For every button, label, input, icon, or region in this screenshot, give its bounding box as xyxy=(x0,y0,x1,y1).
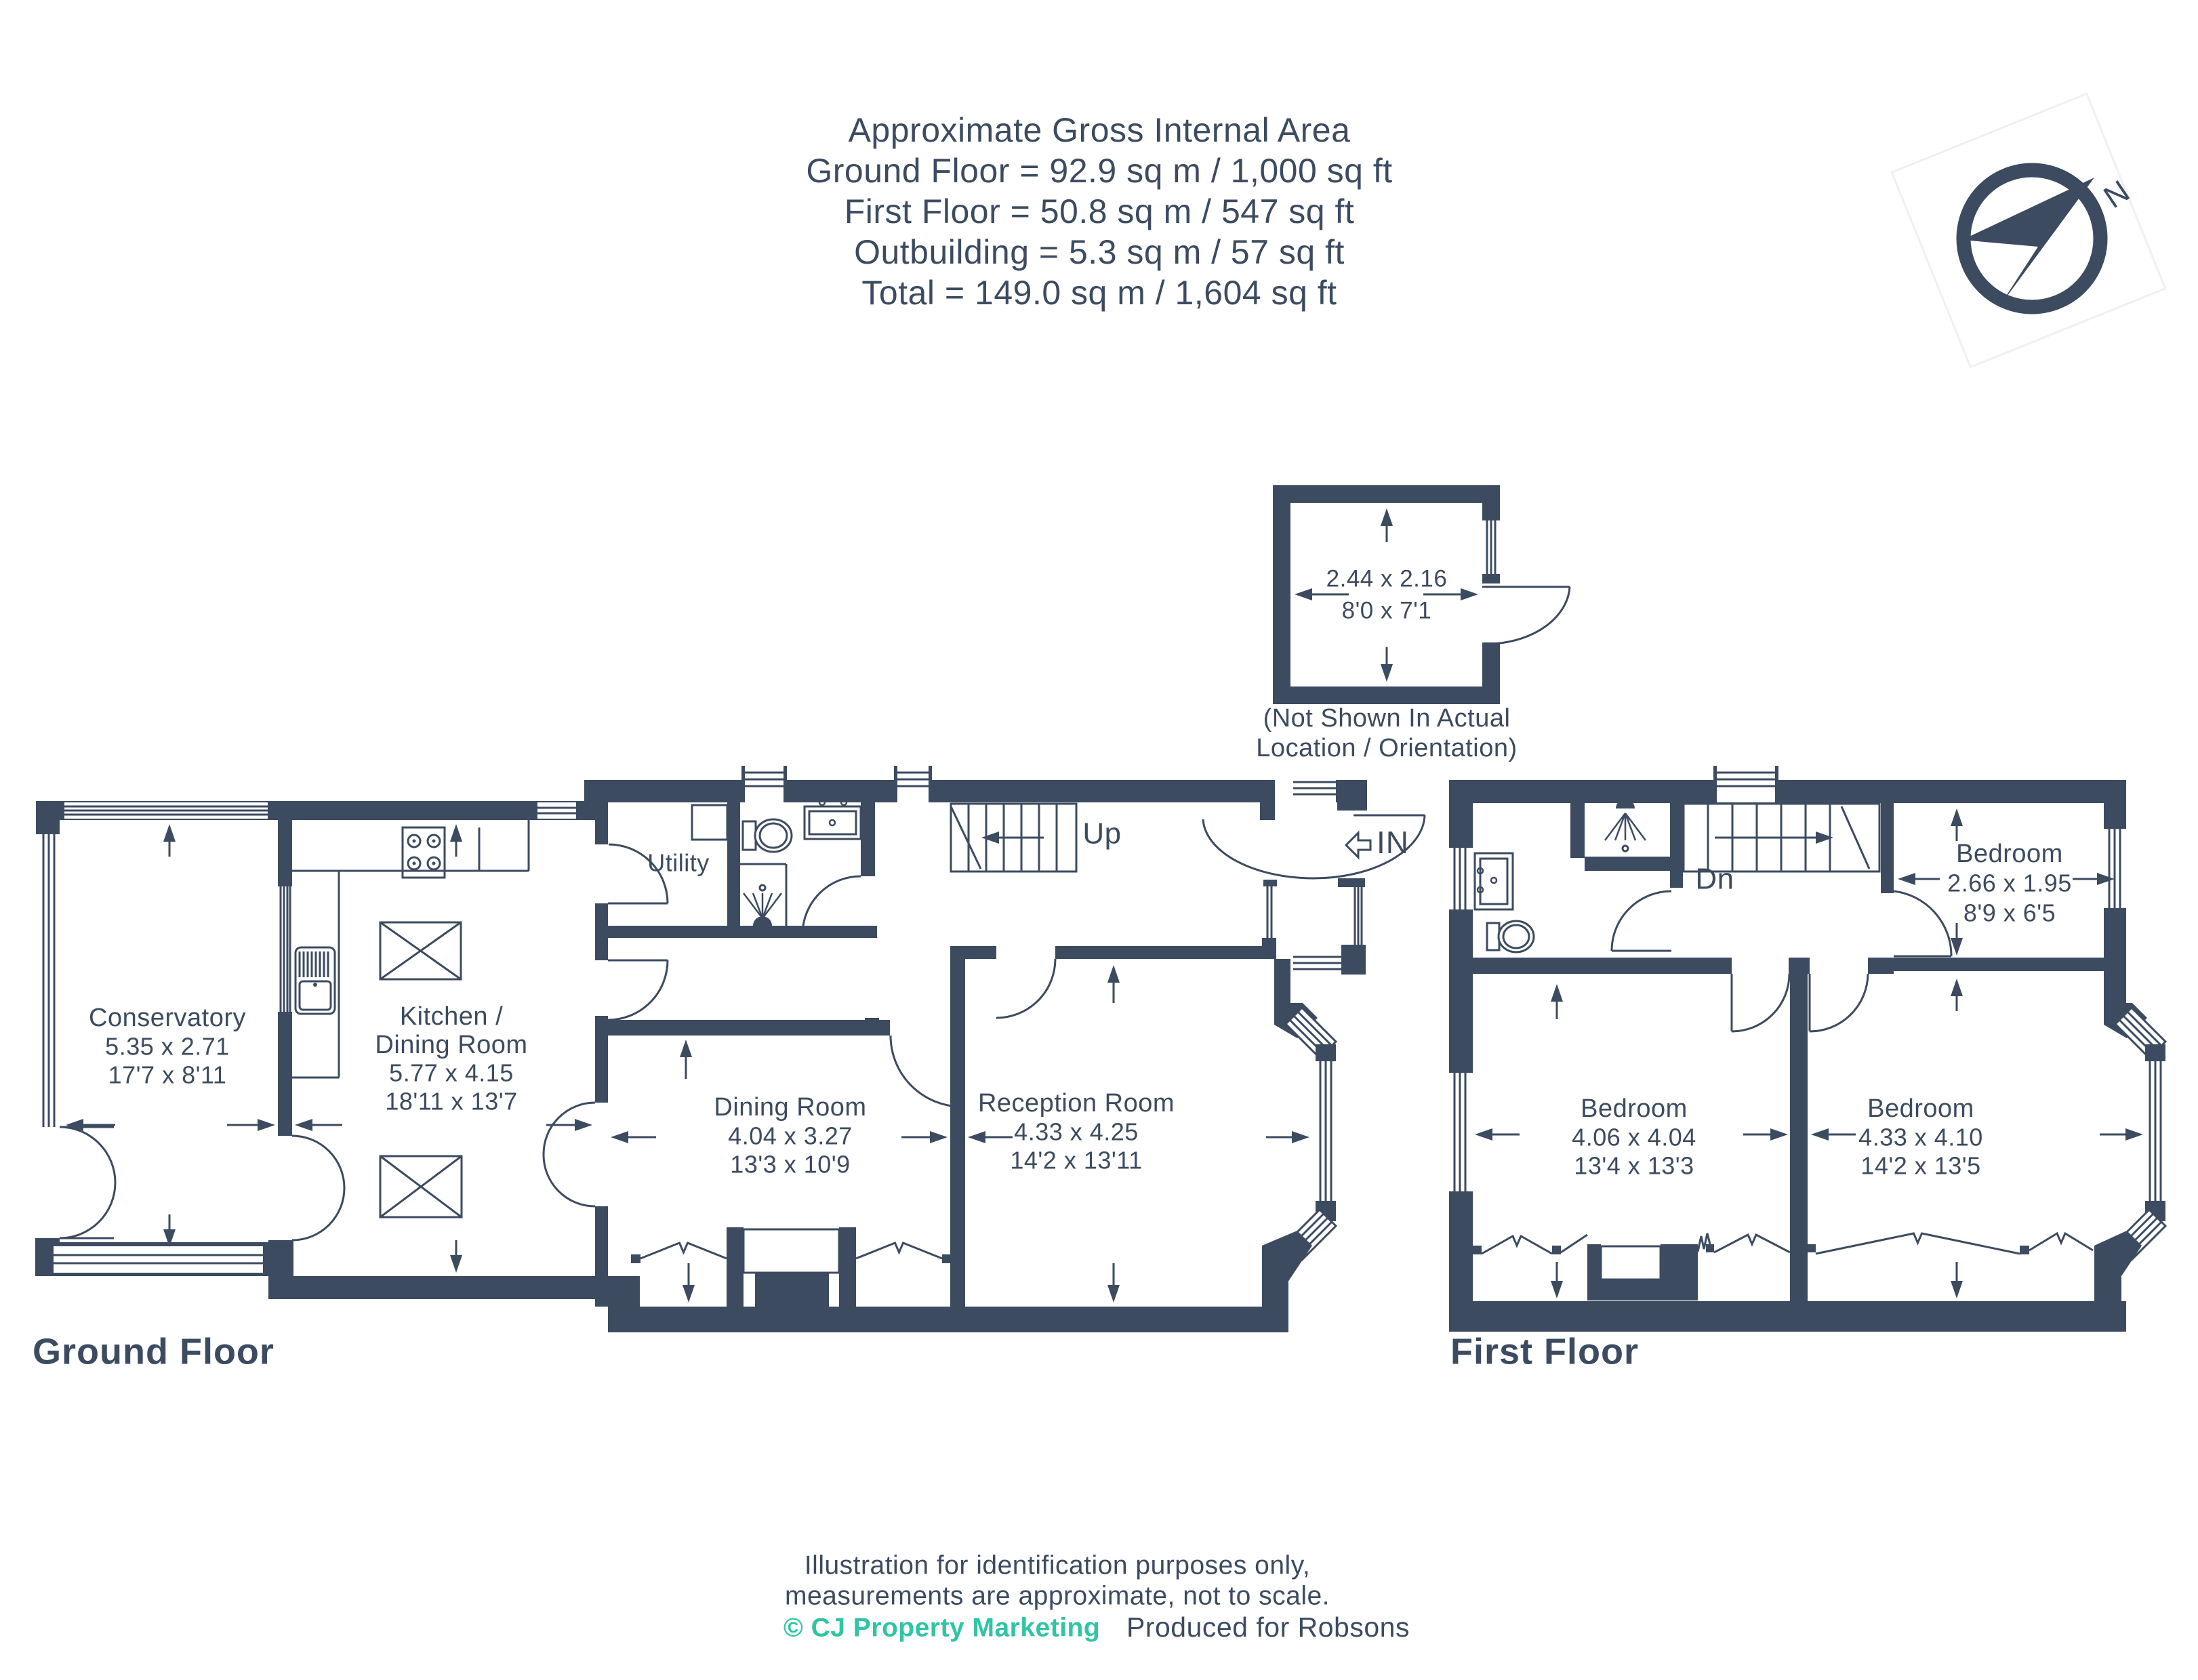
svg-text:IN: IN xyxy=(1377,825,1409,860)
svg-text:Utility: Utility xyxy=(647,849,710,877)
svg-text:Bedroom: Bedroom xyxy=(1867,1094,1974,1123)
svg-text:4.33 x 4.10: 4.33 x 4.10 xyxy=(1858,1124,1983,1151)
svg-text:18'11 x 13'7: 18'11 x 13'7 xyxy=(385,1088,517,1115)
svg-text:Produced for Robsons: Produced for Robsons xyxy=(1126,1612,1410,1643)
svg-text:8'9 x 6'5: 8'9 x 6'5 xyxy=(1963,899,2056,927)
svg-text:measurements are approximate,: measurements are approximate, not to sca… xyxy=(785,1581,1330,1610)
svg-text:Total = 149.0 sq m / 1,604 sq: Total = 149.0 sq m / 1,604 sq ft xyxy=(861,274,1337,312)
svg-text:Ground Floor: Ground Floor xyxy=(33,1331,274,1372)
svg-text:Bedroom: Bedroom xyxy=(1581,1094,1688,1123)
svg-text:14'2 x 13'5: 14'2 x 13'5 xyxy=(1860,1152,1980,1180)
svg-text:Conservatory: Conservatory xyxy=(89,1004,246,1032)
svg-text:Dining Room: Dining Room xyxy=(714,1093,866,1122)
svg-text:13'4 x 13'3: 13'4 x 13'3 xyxy=(1574,1152,1694,1180)
svg-text:Ground Floor = 92.9 sq m / 1,0: Ground Floor = 92.9 sq m / 1,000 sq ft xyxy=(806,152,1392,190)
svg-text:5.77 x 4.15: 5.77 x 4.15 xyxy=(389,1059,514,1087)
svg-text:Dn: Dn xyxy=(1695,863,1734,896)
svg-text:First Floor = 50.8 sq m / 547: First Floor = 50.8 sq m / 547 sq ft xyxy=(844,192,1355,230)
svg-text:4.06 x 4.04: 4.06 x 4.04 xyxy=(1572,1124,1696,1151)
svg-text:Dining Room: Dining Room xyxy=(375,1031,527,1059)
svg-text:4.33 x 4.25: 4.33 x 4.25 xyxy=(1014,1118,1139,1146)
svg-text:4.04 x 3.27: 4.04 x 3.27 xyxy=(728,1122,853,1150)
svg-text:Reception Room: Reception Room xyxy=(978,1089,1175,1118)
svg-text:5.35 x 2.71: 5.35 x 2.71 xyxy=(105,1033,230,1061)
svg-text:8'0 x 7'1: 8'0 x 7'1 xyxy=(1342,597,1432,623)
svg-text:Approximate Gross Internal Are: Approximate Gross Internal Area xyxy=(849,111,1351,149)
svg-text:Bedroom: Bedroom xyxy=(1956,840,2063,868)
svg-text:Outbuilding = 5.3 sq m / 57 sq: Outbuilding = 5.3 sq m / 57 sq ft xyxy=(854,233,1345,271)
svg-text:Up: Up xyxy=(1082,817,1121,851)
svg-text:2.44 x 2.16: 2.44 x 2.16 xyxy=(1326,565,1448,592)
svg-text:17'7 x 8'11: 17'7 x 8'11 xyxy=(108,1061,227,1089)
svg-text:Location / Orientation): Location / Orientation) xyxy=(1256,734,1517,762)
svg-text:14'2 x 13'11: 14'2 x 13'11 xyxy=(1010,1147,1142,1174)
svg-text:Kitchen /: Kitchen / xyxy=(400,1002,503,1031)
svg-text:Illustration for identificatio: Illustration for identification purposes… xyxy=(805,1551,1310,1580)
svg-text:First Floor: First Floor xyxy=(1450,1331,1639,1372)
svg-text:13'3 x 10'9: 13'3 x 10'9 xyxy=(730,1151,850,1179)
svg-text:2.66 x 1.95: 2.66 x 1.95 xyxy=(1947,869,2072,897)
svg-text:(Not Shown In Actual: (Not Shown In Actual xyxy=(1263,704,1511,733)
svg-text:© CJ Property Marketing: © CJ Property Marketing xyxy=(783,1613,1100,1642)
